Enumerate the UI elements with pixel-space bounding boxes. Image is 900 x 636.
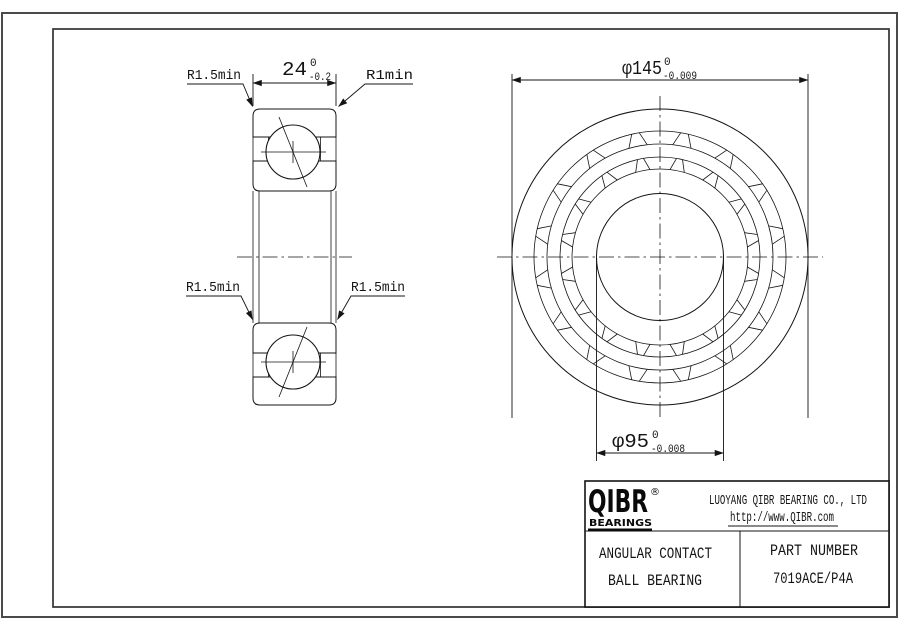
brand-logo-text: QIBR <box>588 484 648 520</box>
leader-bottom-left <box>186 296 253 320</box>
fillet-label-bottom-right: R1.5min <box>351 281 405 296</box>
fillet-label-bottom-left: R1.5min <box>186 281 240 296</box>
leader-top-right <box>339 84 414 107</box>
width-dimension: 24 0 -0.2 <box>253 58 336 106</box>
bearing-technical-drawing: 24 0 -0.2 R1.5min R1min R1.5min R1.5min <box>0 0 900 636</box>
product-name-line1: ANGULAR CONTACT <box>599 545 712 563</box>
title-block: QIBR ® BEARINGS LUOYANG QIBR BEARING CO.… <box>585 481 889 607</box>
od-dim-tol-lower: -0.009 <box>663 71 697 83</box>
product-name-line2: BALL BEARING <box>608 572 702 590</box>
company-name: LUOYANG QIBR BEARING CO., LTD <box>709 493 867 509</box>
od-dim-tol-upper: 0 <box>664 57 671 69</box>
drawing-sheet: 24 0 -0.2 R1.5min R1min R1.5min R1.5min <box>0 0 900 636</box>
bore-dim-tol-lower: -0.008 <box>651 444 685 456</box>
front-view: φ145 0 -0.009 φ95 0 -0.008 <box>497 57 823 461</box>
width-dim-value: 24 <box>282 59 307 81</box>
width-dim-tol-upper: 0 <box>310 58 317 70</box>
fillet-label-top-left: R1.5min <box>187 69 241 84</box>
section-upper-half <box>253 109 336 191</box>
bore-dim-value: φ95 <box>612 431 649 453</box>
part-number-label: PART NUMBER <box>770 542 858 560</box>
brand-sub-text: BEARINGS <box>589 518 652 529</box>
width-dim-tol-lower: -0.2 <box>309 72 331 84</box>
part-number-value: 7019ACE/P4A <box>773 570 853 588</box>
brand-underline-bar <box>588 529 652 532</box>
leader-top-left <box>187 84 253 107</box>
leader-bottom-right <box>338 296 406 320</box>
fillet-label-top-right: R1min <box>366 69 413 84</box>
od-dim-value: φ145 <box>622 58 662 80</box>
registered-mark: ® <box>650 487 660 498</box>
company-website: http://www.QIBR.com <box>730 510 834 526</box>
section-lower-half <box>253 323 336 405</box>
section-view: 24 0 -0.2 R1.5min R1min R1.5min R1.5min <box>186 58 413 405</box>
bore-dim-tol-upper: 0 <box>652 430 659 442</box>
fillet-leaders: R1.5min R1min R1.5min R1.5min <box>186 69 413 320</box>
cage-section-right <box>321 137 337 161</box>
